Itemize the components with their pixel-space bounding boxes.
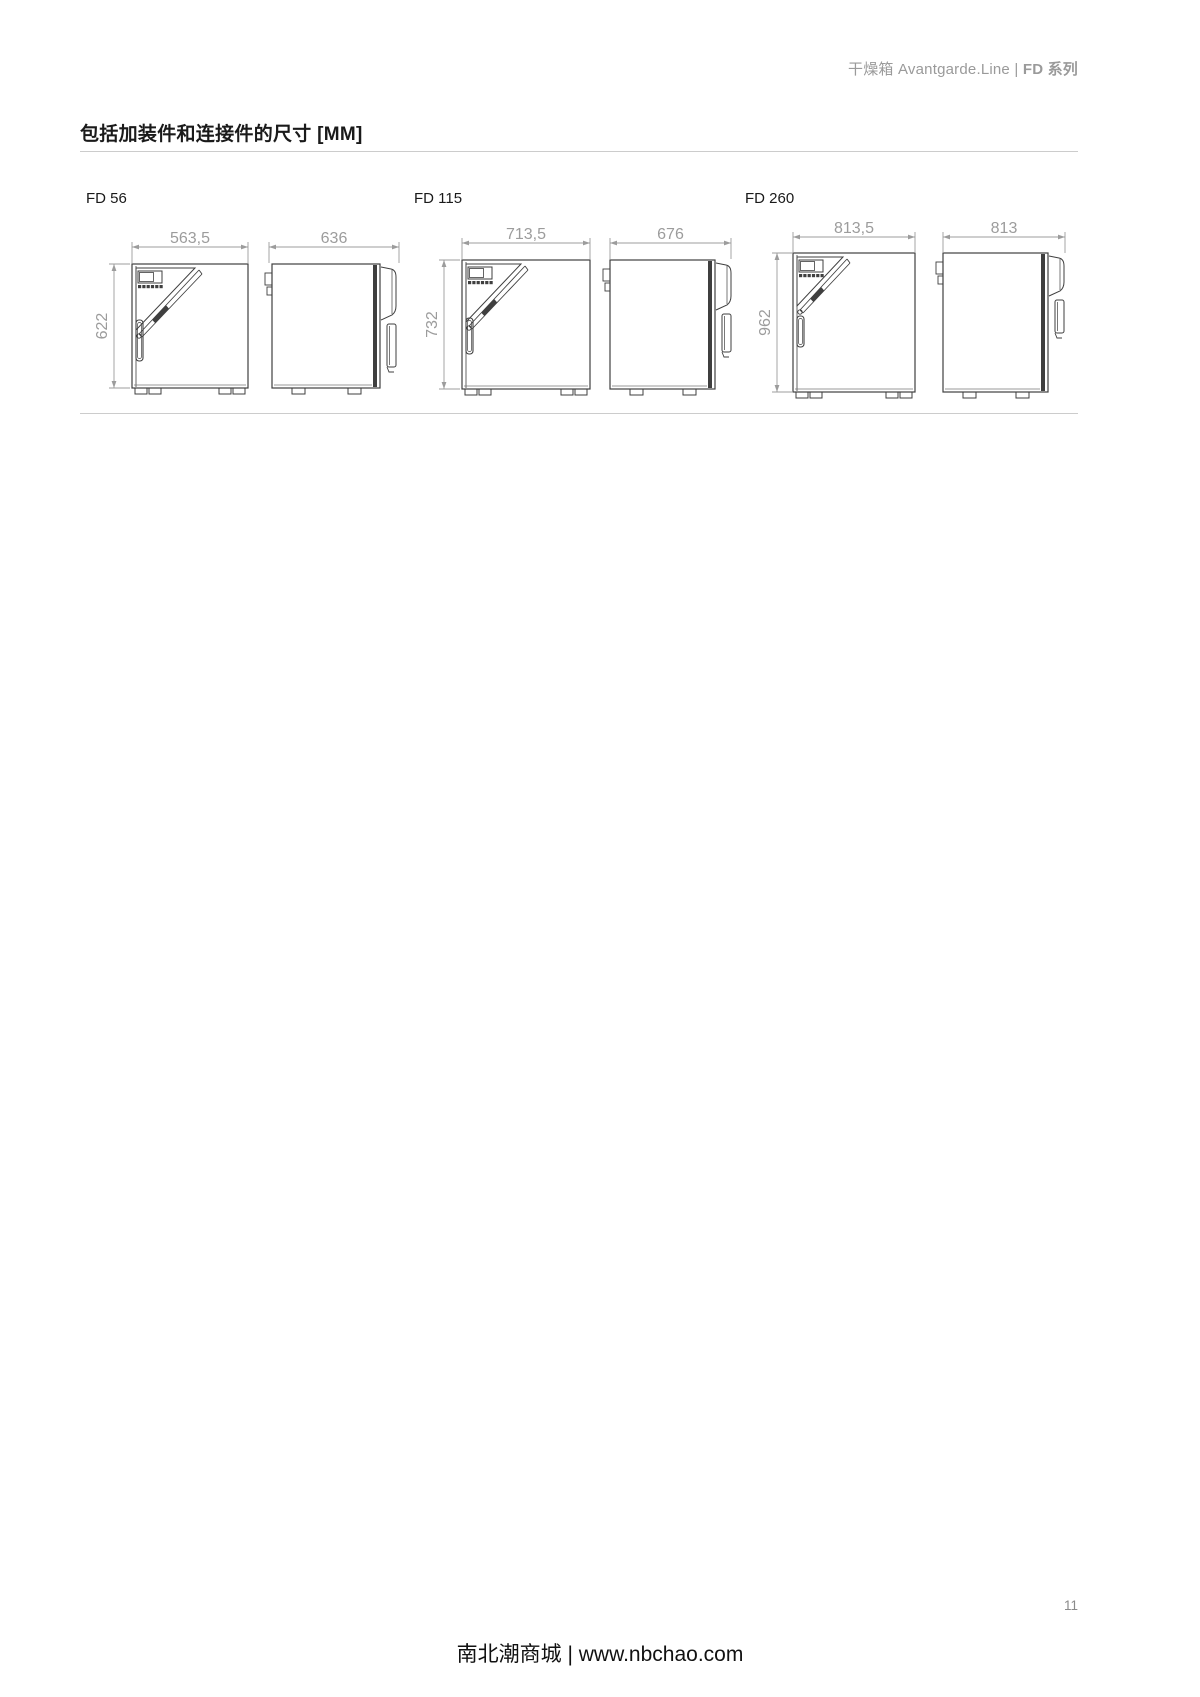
header-separator: | [1010,61,1023,78]
catalog-page: 干燥箱 Avantgarde.Line | FD 系列 包括加装件和连接件的尺寸… [0,0,1200,1697]
dimension-label: 732 [424,311,441,338]
dimension-label: 563,5 [170,230,210,247]
front-view [793,253,915,398]
title-divider [80,151,1078,152]
page-number: 11 [80,1598,1078,1613]
rear-latch [603,269,610,281]
dimension-label: 962 [757,309,774,336]
dimension-label: 622 [94,313,111,340]
handle-profile [1055,300,1064,333]
panel-housing-profile [381,267,396,320]
side-view [936,253,1064,398]
model-group-2: FD 260813,5962813 [745,190,1065,398]
page-title: 包括加装件和连接件的尺寸 [MM] [80,119,363,146]
header-series: FD 系列 [1023,61,1078,78]
front-view [132,264,248,394]
rear-latch [936,262,943,274]
section-divider [80,413,1078,414]
handle-profile [387,324,396,367]
model-label: FD 56 [86,190,127,207]
dimension-label: 676 [657,226,684,243]
dimension-label: 636 [321,230,348,247]
rear-latch [265,273,272,285]
dimension-label: 713,5 [506,226,546,243]
header-product: 干燥箱 Avantgarde.Line [848,61,1010,78]
dimension-label: 813,5 [834,220,874,237]
front-view [462,260,590,395]
side-view [265,264,396,394]
model-label: FD 115 [414,190,462,207]
model-group-1: FD 115713,5732676 [414,190,731,395]
side-view [603,260,731,395]
model-group-0: FD 56563,5622636 [86,190,399,394]
handle-profile [722,314,731,352]
page-header: 干燥箱 Avantgarde.Line | FD 系列 [848,58,1078,79]
door-handle [797,316,804,347]
panel-housing-profile [1049,256,1064,296]
model-label: FD 260 [745,190,794,207]
dimension-drawings: FD 56563,5622636FD 115713,5732676FD 2608… [70,170,1090,415]
panel-housing-profile [716,263,731,310]
dimension-label: 813 [991,220,1018,237]
footer-site: 南北潮商城 | www.nbchao.com [0,1638,1200,1668]
